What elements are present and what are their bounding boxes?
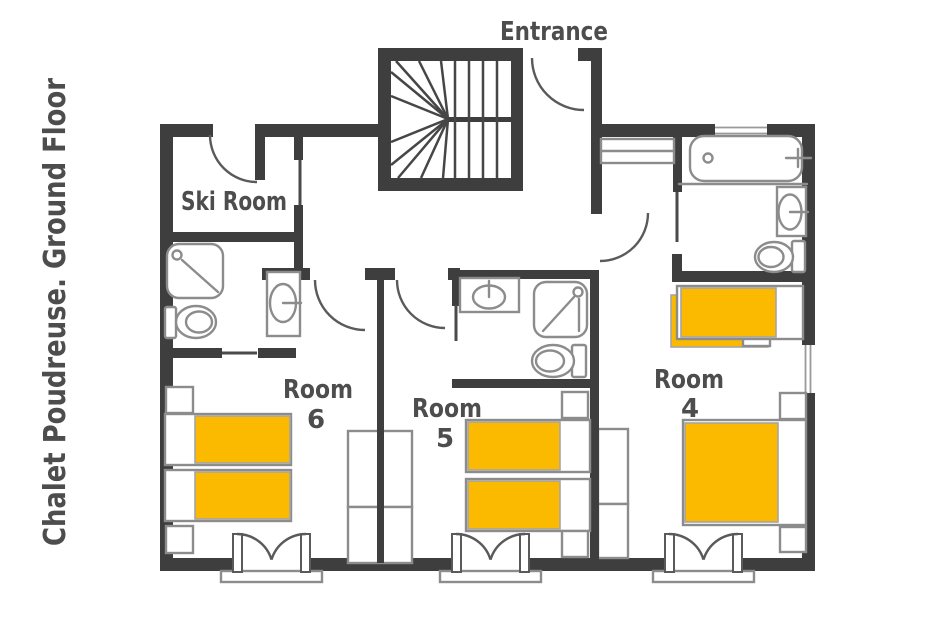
stair-winder xyxy=(391,119,448,165)
toilet-cistern-icon xyxy=(165,307,176,338)
bed-mattress xyxy=(468,422,560,470)
bed-mattress xyxy=(195,416,290,463)
room5-label-number: 5 xyxy=(436,424,454,454)
bathroom-room4 xyxy=(679,136,811,272)
toilet-bowl-icon xyxy=(536,351,564,372)
bed-mattress xyxy=(468,481,560,529)
room4-label-name: Room xyxy=(654,365,724,395)
ski-room-wall-bottom xyxy=(160,232,303,242)
nightstand xyxy=(562,531,588,557)
outer-wall-top-corridor xyxy=(255,124,378,137)
shower-room-wall-bottom-1 xyxy=(160,348,222,358)
ski-room-exterior-door-leaf xyxy=(255,124,265,180)
stairs-wall-right xyxy=(511,48,523,191)
hall-wall-vertical xyxy=(591,48,602,214)
shower-room-left xyxy=(165,244,223,338)
entrance-door-arc xyxy=(532,58,584,110)
window-right xyxy=(802,345,815,393)
toilet-bowl-icon xyxy=(186,312,212,333)
bed-mattress xyxy=(681,288,776,337)
wardrobe xyxy=(598,429,628,504)
toilet-bowl-icon xyxy=(759,247,784,267)
nightstand xyxy=(166,526,193,553)
french-door-room4 xyxy=(653,534,754,582)
staircase xyxy=(391,61,511,178)
floor-plan: Chalet Poudreuse. Ground Floor Entrance … xyxy=(0,0,940,626)
wc-washbasin xyxy=(267,272,301,336)
bathroom5-wall-bottom xyxy=(452,379,598,388)
room5-label-name: Room xyxy=(412,394,482,424)
room5-furniture xyxy=(466,392,590,557)
outer-wall-bottom-1 xyxy=(160,558,233,571)
stairs-wall-left xyxy=(378,48,391,191)
nightstand xyxy=(780,527,806,552)
bathtub-drain-icon xyxy=(704,154,713,163)
room6-label: Room 6 xyxy=(283,375,353,435)
french-door-room6 xyxy=(221,534,322,582)
page-title: Chalet Poudreuse. Ground Floor xyxy=(38,78,73,546)
stair-winder xyxy=(391,72,448,119)
ski-room-label: Ski Room xyxy=(181,187,287,217)
french-door-room5 xyxy=(440,534,541,582)
ski-room-exterior-door-arc xyxy=(210,135,257,182)
stairs-wall-top xyxy=(378,48,523,61)
wardrobe xyxy=(598,504,628,558)
shower-room-wall-bottom-2 xyxy=(258,348,296,358)
floor-plan-page: Chalet Poudreuse. Ground Floor Entrance … xyxy=(0,0,940,626)
room4-door-arc xyxy=(600,213,648,261)
shower-head-icon xyxy=(574,288,583,297)
nightstand xyxy=(166,387,193,413)
shower-head-icon xyxy=(173,251,182,260)
entrance-label: Entrance xyxy=(500,17,608,47)
bed-mattress xyxy=(195,472,290,519)
outer-wall-bottom-4 xyxy=(742,558,815,571)
room6-door-arc xyxy=(315,280,365,330)
outer-wall-top-skiroom xyxy=(160,124,213,137)
stairs-wall-bottom xyxy=(378,178,523,191)
nightstand xyxy=(562,392,588,418)
room6-label-number: 6 xyxy=(307,405,325,435)
bathroom5-wall-left xyxy=(452,270,460,306)
ski-room-wall-right-upper xyxy=(294,137,303,160)
room6-furniture xyxy=(165,387,291,553)
outer-wall-top-right-a xyxy=(602,124,715,137)
room4-label: Room 4 xyxy=(654,365,724,424)
room5-door-arc xyxy=(397,280,445,328)
room4-label-number: 4 xyxy=(681,394,699,424)
double-bed-mattress xyxy=(685,423,778,522)
room6-room5-wall xyxy=(377,278,384,563)
hall-closet xyxy=(601,139,674,163)
room5-room4-wall xyxy=(590,270,599,563)
room6-label-name: Room xyxy=(283,375,353,405)
bathroom-room5 xyxy=(460,278,587,377)
nightstand xyxy=(780,393,806,419)
